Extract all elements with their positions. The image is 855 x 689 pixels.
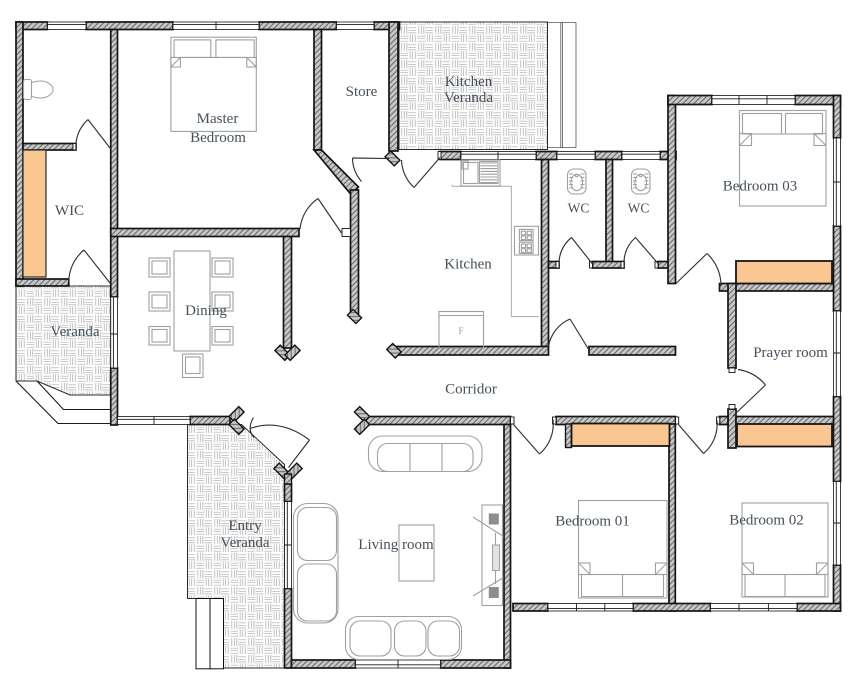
svg-text:Kitchen: Kitchen — [445, 74, 493, 90]
svg-text:Bedroom: Bedroom — [190, 130, 246, 146]
svg-text:Veranda: Veranda — [50, 324, 99, 340]
svg-text:WIC: WIC — [55, 203, 84, 219]
svg-text:Dining: Dining — [185, 303, 227, 319]
svg-text:Prayer room: Prayer room — [753, 345, 828, 361]
svg-text:Bedroom 01: Bedroom 01 — [555, 514, 630, 530]
svg-text:Veranda: Veranda — [220, 535, 269, 551]
svg-text:Master: Master — [197, 111, 239, 127]
svg-text:WC: WC — [568, 201, 590, 216]
svg-text:Entry: Entry — [228, 518, 262, 534]
svg-text:Bedroom 03: Bedroom 03 — [723, 179, 798, 195]
svg-text:Kitchen: Kitchen — [444, 257, 492, 273]
svg-text:Bedroom 02: Bedroom 02 — [729, 513, 804, 529]
svg-text:WC: WC — [628, 201, 650, 216]
svg-text:Living room: Living room — [358, 537, 434, 553]
svg-text:Veranda: Veranda — [444, 90, 493, 106]
svg-text:Corridor: Corridor — [445, 382, 497, 398]
svg-text:F: F — [458, 326, 463, 336]
svg-text:Store: Store — [346, 84, 378, 100]
